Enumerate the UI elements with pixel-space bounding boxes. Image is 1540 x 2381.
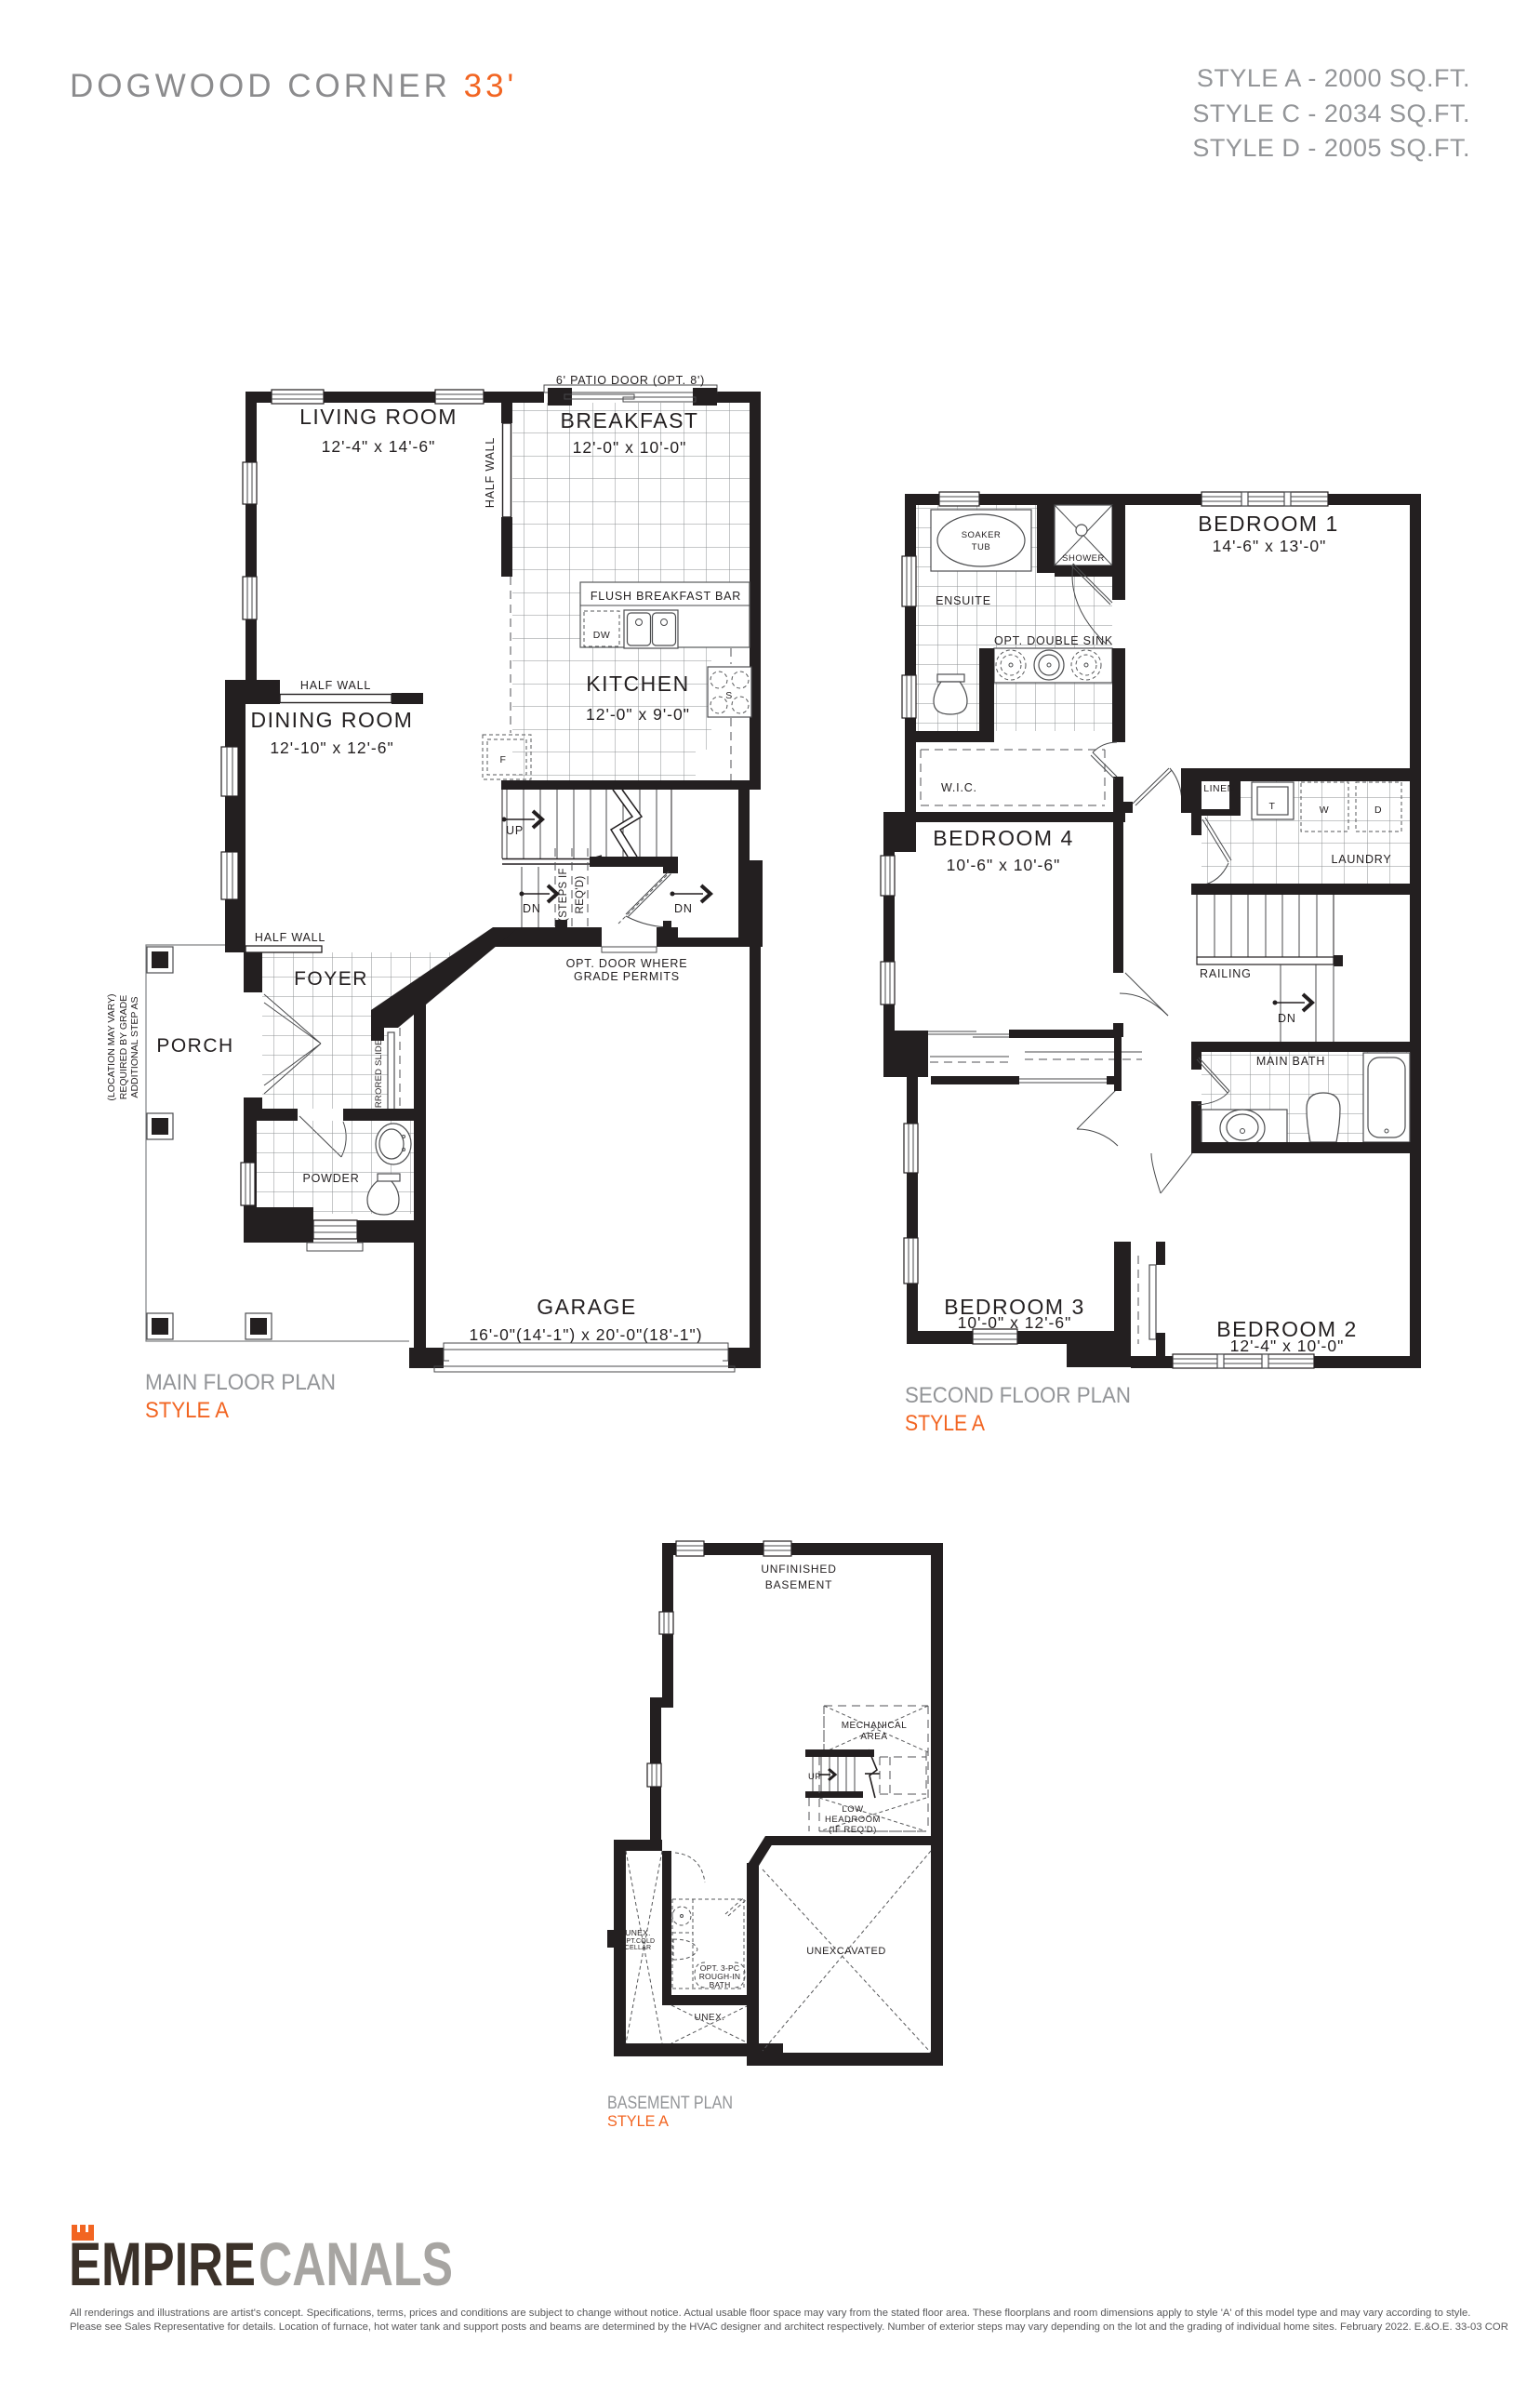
svg-text:LINEN: LINEN — [1203, 783, 1234, 794]
svg-text:DINING ROOM: DINING ROOM — [251, 708, 414, 732]
svg-text:PORCH: PORCH — [156, 1035, 233, 1057]
svg-text:LOW: LOW — [842, 1804, 863, 1815]
svg-text:12'-4" x 10'-0": 12'-4" x 10'-0" — [1230, 1337, 1345, 1355]
svg-text:BREAKFAST: BREAKFAST — [561, 408, 699, 432]
svg-text:CELLAR: CELLAR — [625, 1945, 651, 1951]
svg-text:MAIN BATH: MAIN BATH — [1256, 1055, 1325, 1068]
svg-text:GARAGE: GARAGE — [537, 1295, 636, 1319]
svg-text:EMPIRE: EMPIRE — [69, 2229, 256, 2298]
svg-text:OPT.COLD: OPT.COLD — [621, 1938, 656, 1945]
svg-text:REQ'D): REQ'D) — [575, 875, 586, 913]
svg-text:MAIN FLOOR PLAN: MAIN FLOOR PLAN — [145, 1370, 336, 1395]
svg-text:CANALS: CANALS — [259, 2229, 453, 2298]
svg-text:DN: DN — [674, 902, 693, 915]
svg-text:REQUIRED BY GRADE: REQUIRED BY GRADE — [118, 995, 129, 1099]
svg-text:STYLE A: STYLE A — [145, 1398, 229, 1423]
svg-text:SHOWER: SHOWER — [1062, 553, 1105, 564]
svg-text:16'-0"(14'-1") x 20'-0"(18'-1": 16'-0"(14'-1") x 20'-0"(18'-1") — [469, 1325, 702, 1344]
svg-text:DN: DN — [523, 902, 541, 915]
svg-text:W: W — [1320, 805, 1329, 816]
svg-text:FLUSH BREAKFAST BAR: FLUSH BREAKFAST BAR — [591, 590, 741, 603]
svg-text:UNEX.: UNEX. — [694, 2013, 724, 2023]
svg-text:BATH: BATH — [710, 1980, 731, 1989]
svg-text:12'-4" x 14'-6": 12'-4" x 14'-6" — [322, 437, 436, 456]
svg-text:BEDROOM 1: BEDROOM 1 — [1198, 512, 1339, 536]
svg-text:14'-6" x 13'-0": 14'-6" x 13'-0" — [1213, 537, 1327, 555]
svg-text:STYLE C - 2034 SQ.FT.: STYLE C - 2034 SQ.FT. — [1192, 100, 1470, 127]
svg-text:(IF REQ'D): (IF REQ'D) — [829, 1825, 877, 1835]
svg-text:STYLE A: STYLE A — [607, 2112, 670, 2130]
svg-text:STYLE D - 2005 SQ.FT.: STYLE D - 2005 SQ.FT. — [1192, 134, 1470, 162]
svg-text:AREA: AREA — [860, 1732, 887, 1742]
svg-text:KITCHEN: KITCHEN — [586, 672, 689, 696]
svg-text:DW: DW — [593, 630, 611, 641]
svg-text:HALF WALL: HALF WALL — [300, 679, 371, 692]
svg-text:MECHANICAL: MECHANICAL — [842, 1721, 908, 1731]
svg-text:(STEPS IF: (STEPS IF — [558, 868, 569, 922]
svg-text:ENSUITE: ENSUITE — [936, 594, 991, 607]
svg-text:BASEMENT PLAN: BASEMENT PLAN — [607, 2094, 733, 2113]
svg-text:BASEMENT: BASEMENT — [765, 1578, 832, 1591]
svg-text:RAILING: RAILING — [1200, 967, 1252, 980]
svg-text:12'-0" x 9'-0": 12'-0" x 9'-0" — [586, 705, 690, 724]
svg-text:LIVING ROOM: LIVING ROOM — [299, 405, 458, 429]
svg-text:HEADROOM: HEADROOM — [825, 1815, 881, 1825]
svg-text:S: S — [725, 690, 733, 701]
svg-text:Please see Sales Representativ: Please see Sales Representative for deta… — [70, 2321, 1508, 2333]
svg-text:DOGWOOD CORNER 33': DOGWOOD CORNER 33' — [70, 68, 517, 104]
svg-text:12'-0" x 10'-0": 12'-0" x 10'-0" — [573, 438, 687, 457]
svg-text:UNEX.: UNEX. — [625, 1928, 650, 1937]
svg-text:All renderings and illustratio: All renderings and illustrations are art… — [70, 2308, 1470, 2319]
svg-text:ADDITIONAL STEP AS: ADDITIONAL STEP AS — [129, 996, 140, 1097]
svg-text:F: F — [500, 754, 507, 765]
svg-text:UNEXCAVATED: UNEXCAVATED — [806, 1946, 886, 1957]
svg-text:GRADE PERMITS: GRADE PERMITS — [574, 970, 680, 983]
svg-text:TUB: TUB — [972, 542, 991, 552]
svg-text:HALF WALL: HALF WALL — [255, 931, 325, 944]
svg-text:UP: UP — [506, 824, 524, 837]
svg-text:FOYER: FOYER — [294, 968, 368, 990]
svg-text:LAUNDRY: LAUNDRY — [1331, 853, 1391, 866]
svg-text:SECOND FLOOR PLAN: SECOND FLOOR PLAN — [905, 1383, 1131, 1408]
svg-text:10'-6" x 10'-6": 10'-6" x 10'-6" — [947, 856, 1061, 874]
svg-text:OPT. DOOR WHERE: OPT. DOOR WHERE — [566, 957, 688, 970]
svg-text:UNFINISHED: UNFINISHED — [761, 1563, 836, 1576]
svg-text:POWDER: POWDER — [302, 1172, 359, 1185]
svg-text:T: T — [1269, 801, 1276, 812]
svg-text:12'-10" x 12'-6": 12'-10" x 12'-6" — [270, 738, 393, 757]
svg-text:OPT. DOUBLE SINK: OPT. DOUBLE SINK — [994, 634, 1113, 647]
svg-text:BEDROOM 4: BEDROOM 4 — [933, 826, 1074, 850]
svg-text:6' PATIO DOOR (OPT. 8'): 6' PATIO DOOR (OPT. 8') — [556, 374, 705, 387]
svg-text:D: D — [1374, 805, 1382, 816]
svg-text:STYLE A: STYLE A — [905, 1411, 985, 1436]
svg-text:W.I.C.: W.I.C. — [941, 781, 977, 794]
svg-text:SOAKER: SOAKER — [962, 530, 1002, 540]
svg-text:(LOCATION MAY VARY): (LOCATION MAY VARY) — [106, 993, 117, 1100]
svg-text:STYLE A - 2000 SQ.FT.: STYLE A - 2000 SQ.FT. — [1197, 64, 1470, 92]
svg-text:HALF WALL: HALF WALL — [484, 437, 497, 508]
svg-text:DN: DN — [1278, 1012, 1296, 1025]
